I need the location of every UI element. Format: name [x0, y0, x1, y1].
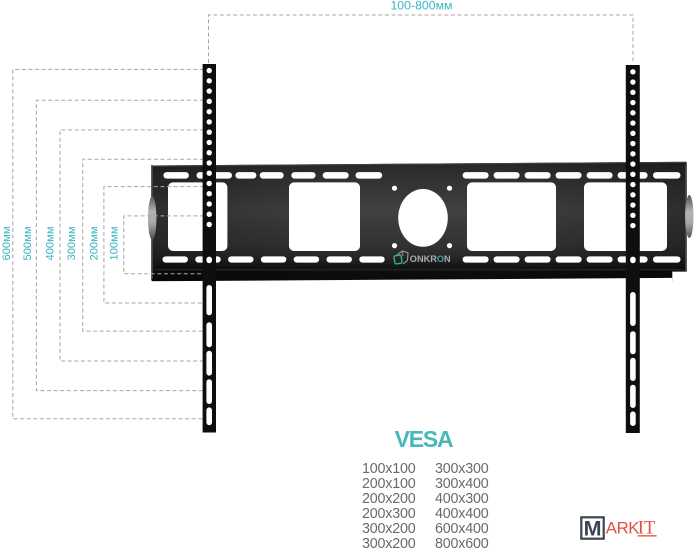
svg-text:ARK: ARK — [606, 518, 640, 537]
svg-text:100x100: 100x100 — [362, 461, 416, 477]
svg-text:600x400: 600x400 — [435, 521, 489, 537]
svg-text:300x200: 300x200 — [362, 521, 416, 537]
svg-text:400мм: 400мм — [45, 226, 57, 260]
svg-text:300x200: 300x200 — [362, 536, 416, 550]
svg-text:800x600: 800x600 — [435, 536, 489, 550]
svg-text:100-800мм: 100-800мм — [390, 0, 452, 13]
svg-text:200x200: 200x200 — [362, 491, 416, 507]
svg-text:ONKRON: ONKRON — [410, 254, 451, 264]
svg-text:200x300: 200x300 — [362, 506, 416, 522]
svg-text:100мм: 100мм — [108, 226, 120, 260]
svg-text:M: M — [584, 516, 602, 540]
svg-text:300x300: 300x300 — [435, 461, 489, 477]
svg-text:400x400: 400x400 — [435, 506, 489, 522]
svg-text:600мм: 600мм — [1, 226, 13, 260]
svg-text:200мм: 200мм — [89, 226, 101, 260]
svg-text:200x100: 200x100 — [362, 476, 416, 492]
svg-text:300мм: 300мм — [66, 226, 78, 260]
svg-text:300x400: 300x400 — [435, 476, 489, 492]
svg-text:500мм: 500мм — [22, 226, 34, 260]
svg-text:VESA: VESA — [395, 426, 453, 452]
svg-text:400x300: 400x300 — [435, 491, 489, 507]
